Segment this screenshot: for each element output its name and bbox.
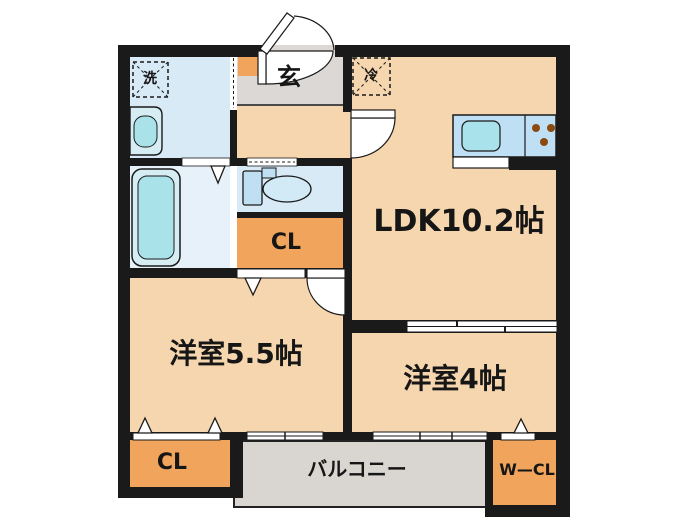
room-ldk	[352, 57, 556, 320]
room-toilet	[237, 166, 343, 212]
wall	[230, 45, 237, 166]
room-label-closet-hall: CL	[271, 232, 301, 254]
wall	[237, 158, 343, 166]
room-label-closet-bedroom: CL	[157, 452, 187, 474]
wall	[485, 505, 570, 517]
room-label-walk-in-closet: W—CL	[499, 462, 555, 478]
entrance-step-line	[237, 104, 343, 106]
room-label-balcony: バルコニー	[307, 459, 407, 479]
wall	[118, 432, 570, 440]
wall	[343, 158, 352, 432]
room-label-western-4: 洋室4帖	[403, 365, 506, 393]
wall	[130, 158, 230, 166]
fixture-label-washer: 洗	[143, 72, 157, 86]
room-label-western-5-5: 洋室5.5帖	[169, 340, 303, 368]
floor-plan: LDK10.2帖 洋室5.5帖 洋室4帖 CL CL W—CL バルコニー 玄 …	[0, 0, 700, 525]
wall	[335, 45, 570, 57]
wall	[343, 320, 570, 333]
wall	[237, 212, 343, 218]
wall	[509, 157, 570, 170]
room-label-entrance: 玄	[277, 65, 301, 89]
fixture-label-refrigerator: 冷	[364, 69, 378, 83]
wall	[343, 45, 352, 112]
room-hallway	[237, 106, 343, 160]
wall	[485, 440, 493, 517]
room-label-ldk: LDK10.2帖	[373, 207, 544, 237]
entrance-doorway-floor	[262, 45, 335, 57]
shoe-cabinet	[238, 56, 258, 76]
wall	[118, 268, 352, 278]
ldk-door-opening-floor	[343, 112, 352, 158]
wall	[230, 432, 243, 498]
room-bathroom	[130, 166, 230, 268]
wall	[118, 45, 262, 57]
wall	[556, 45, 570, 517]
wall	[118, 487, 243, 498]
